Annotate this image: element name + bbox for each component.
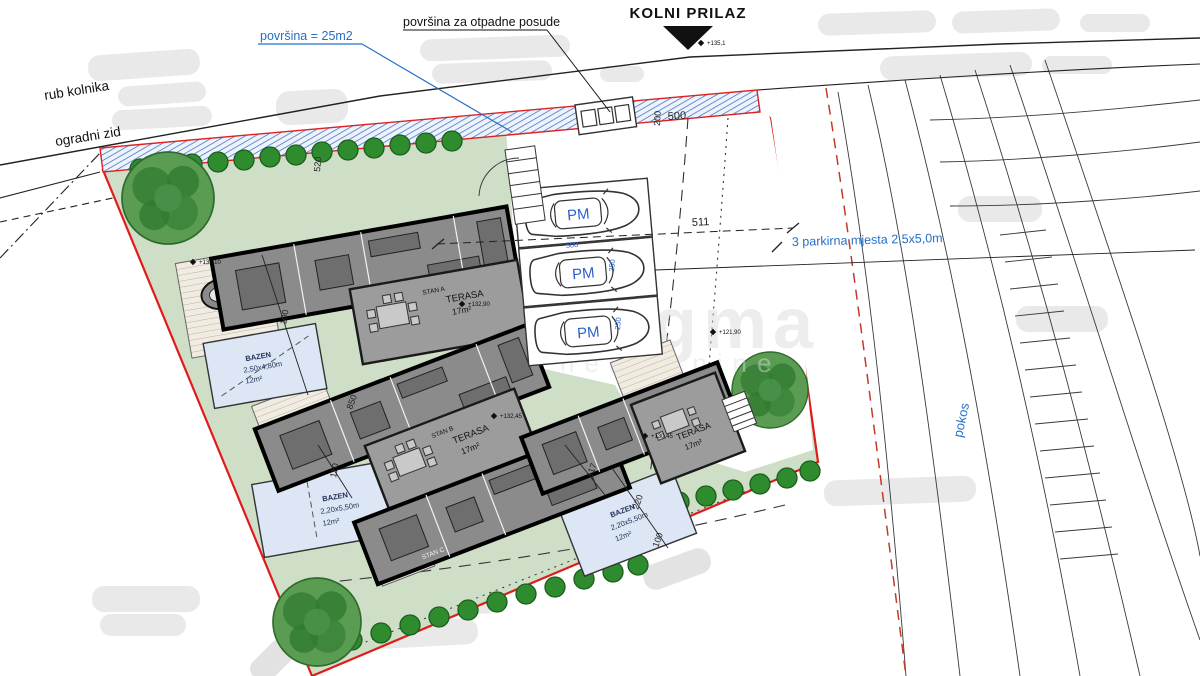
svg-text:+121,90: +121,90 [719, 330, 742, 336]
svg-text:+131,10: +131,10 [199, 260, 222, 266]
parking-stall-label: PM [566, 205, 590, 224]
parking-note: 3 parkirna mjesta 2,5x5,0m [792, 231, 943, 249]
svg-text:520: 520 [312, 156, 323, 172]
parking-stall-3: PM [524, 296, 663, 365]
entrance-arrow-icon [663, 26, 713, 50]
tree-icon [273, 578, 361, 666]
svg-text:+132,90: +132,90 [468, 302, 491, 308]
page-title: KOLNI PRILAZ [630, 5, 747, 22]
svg-text:200: 200 [652, 111, 663, 127]
site-plan-svg: pokos [0, 0, 1200, 676]
svg-text:+132,45: +132,45 [500, 414, 523, 420]
surface-area-label: površina = 25m2 [260, 29, 353, 43]
tree-icon [122, 152, 214, 244]
site-plan-canvas: pokos [0, 0, 1200, 676]
parking-stall-label: PM [576, 323, 600, 342]
road-edge-label: rub kolnika [43, 78, 110, 103]
waste-area-label: površina za otpadne posude [403, 15, 560, 29]
svg-text:+135,1: +135,1 [707, 41, 726, 47]
setback-line-dashed-red [826, 88, 906, 676]
svg-text:500: 500 [565, 240, 578, 250]
svg-text:250: 250 [613, 317, 623, 330]
svg-text:511: 511 [692, 216, 710, 229]
svg-text:250: 250 [607, 259, 617, 272]
parking-stall-2: PM [519, 237, 658, 306]
parking-stall-label: PM [571, 264, 595, 283]
svg-text:+130,45: +130,45 [651, 434, 674, 440]
slope-label: pokos [950, 401, 972, 439]
contour-lines [838, 60, 1200, 676]
svg-text:500: 500 [667, 110, 686, 123]
